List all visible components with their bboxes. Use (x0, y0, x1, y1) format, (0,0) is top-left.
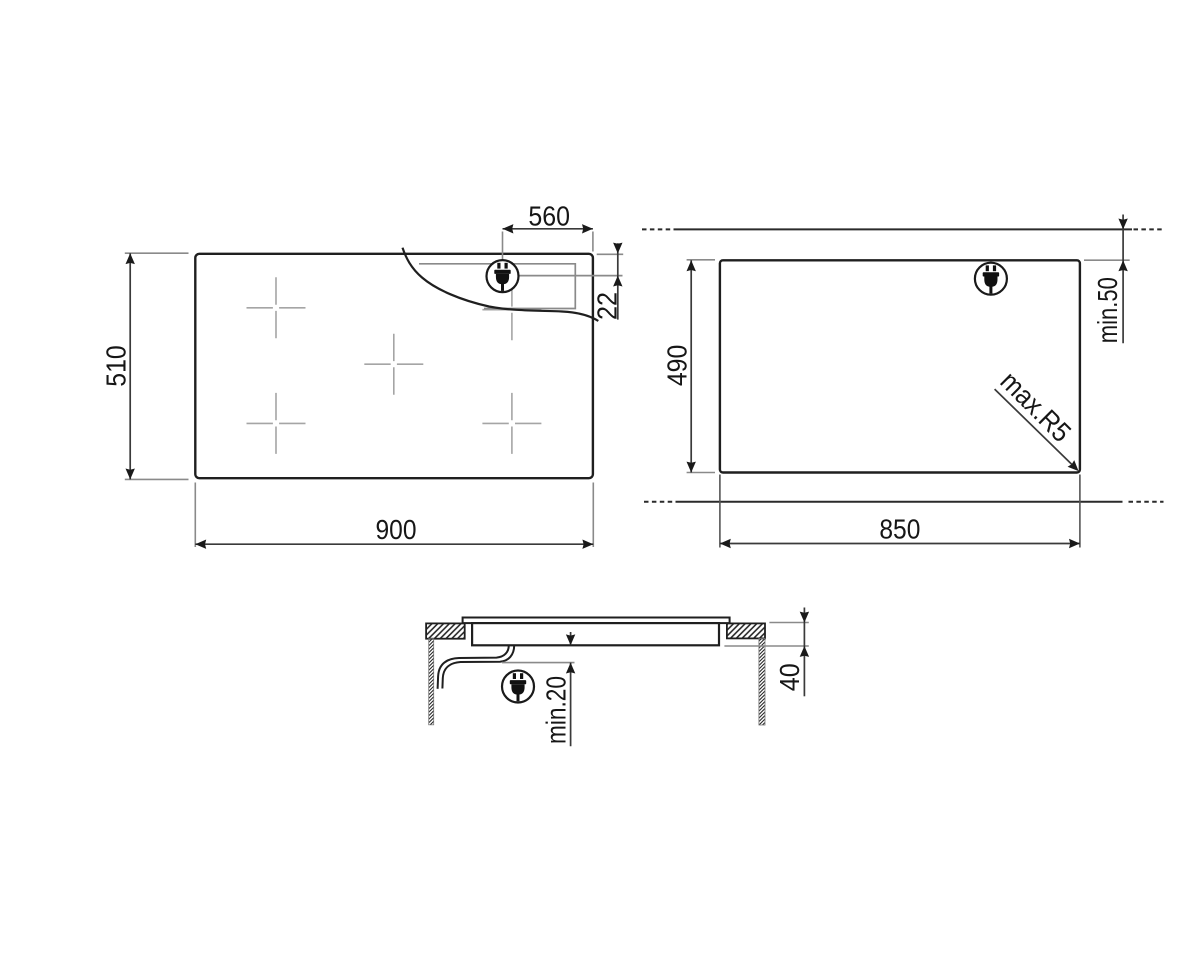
svg-text:40: 40 (774, 663, 805, 691)
svg-text:22: 22 (591, 292, 622, 320)
svg-text:850: 850 (879, 514, 920, 545)
svg-text:min.50: min.50 (1092, 277, 1123, 343)
svg-text:900: 900 (376, 514, 417, 545)
svg-text:490: 490 (662, 345, 693, 387)
svg-text:min.20: min.20 (541, 676, 572, 744)
svg-text:560: 560 (528, 201, 570, 232)
svg-text:510: 510 (100, 345, 131, 387)
